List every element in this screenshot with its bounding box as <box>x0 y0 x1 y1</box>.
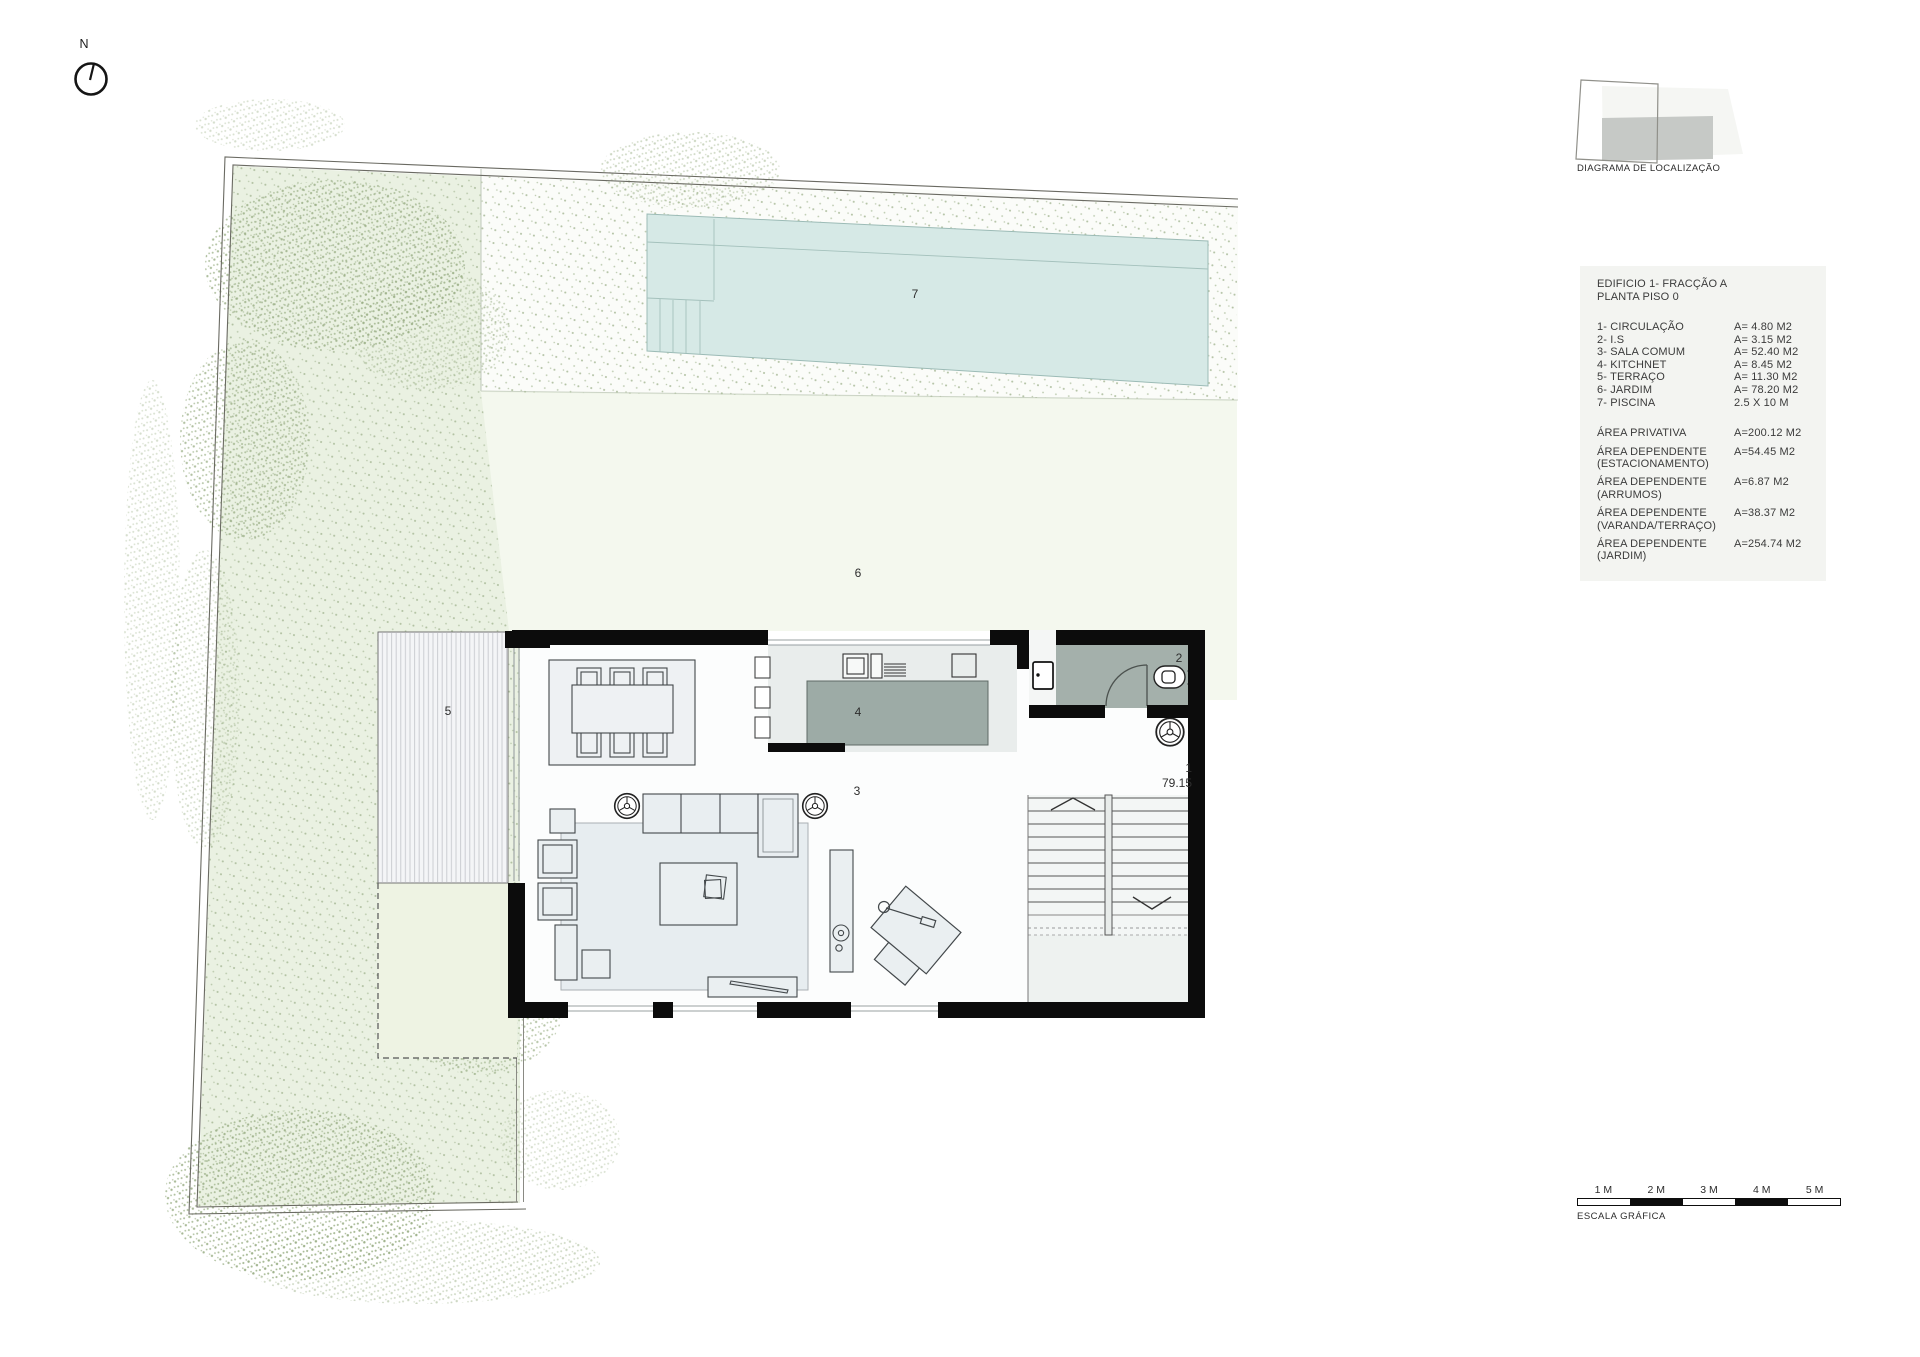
legend-area-list: ÁREA PRIVATIVAA=200.12 M2 ÁREA DEPENDENT… <box>1597 427 1814 563</box>
legend-row: 1- CIRCULAÇÃOA= 4.80 M2 <box>1597 321 1814 334</box>
ceiling-fan-icon <box>1156 718 1184 746</box>
kitchen-stools <box>755 657 770 738</box>
scale-bar-segments <box>1577 1198 1841 1206</box>
room-label-is: 2 <box>1176 651 1183 665</box>
bathroom <box>1029 645 1190 708</box>
room-label-terraco: 5 <box>445 704 452 718</box>
building <box>505 630 1205 1018</box>
legend-area-row: ÁREA DEPENDENTE(JARDIM)A=254.74 M2 <box>1597 538 1814 563</box>
sideboard <box>830 850 853 972</box>
legend-row: 2- I.SA= 3.15 M2 <box>1597 334 1814 347</box>
stair-divider <box>1105 795 1112 935</box>
room-label-piscina: 7 <box>912 287 919 301</box>
legend-room-list: 1- CIRCULAÇÃOA= 4.80 M2 2- I.SA= 3.15 M2… <box>1597 321 1814 409</box>
legend-area-row: ÁREA PRIVATIVAA=200.12 M2 <box>1597 427 1814 439</box>
speaker-icon <box>615 794 640 819</box>
coffee-table <box>660 863 737 925</box>
side-table <box>550 809 575 833</box>
legend-title-line1: EDIFICIO 1- FRACÇÃO A <box>1597 278 1814 291</box>
localization-diagram <box>1576 80 1743 163</box>
dining-table <box>572 685 673 733</box>
room-label-jardim: 6 <box>855 566 862 580</box>
scale-bar: 1 M 2 M 3 M 4 M 5 M ESCALA GRÁFICA <box>1577 1184 1841 1222</box>
scale-bar-caption: ESCALA GRÁFICA <box>1577 1211 1841 1222</box>
room-label-circulacao: 1 <box>1106 761 1192 776</box>
garden-dashed-area <box>378 883 517 1058</box>
washbasin-icon <box>1033 662 1053 689</box>
north-label: N <box>79 37 88 51</box>
level-value: 79.15 <box>1106 776 1192 791</box>
table-decor <box>704 875 727 899</box>
armchair <box>538 840 577 878</box>
stair-landing <box>1028 935 1188 1002</box>
legend-row: 5- TERRAÇOA= 11.30 M2 <box>1597 371 1814 384</box>
legend-area-row: ÁREA DEPENDENTE(VARANDA/TERRAÇO)A=38.37 … <box>1597 507 1814 532</box>
legend-row: 3- SALA COMUMA= 52.40 M2 <box>1597 346 1814 359</box>
plan-drawing <box>0 0 1920 1357</box>
floor-plan-sheet: 7 6 5 4 3 2 1 79.15 N DIAGRAMA DE LOCALI… <box>0 0 1920 1357</box>
room-label-sala: 3 <box>854 784 861 798</box>
terrace <box>378 632 508 883</box>
side-table <box>582 950 610 978</box>
room-label-kitchnet: 4 <box>855 705 862 719</box>
stairs <box>1028 795 1188 1002</box>
legend-row: 6- JARDIMA= 78.20 M2 <box>1597 384 1814 397</box>
entry-opening <box>1030 630 1056 645</box>
legend-title-line2: PLANTA PISO 0 <box>1597 291 1814 304</box>
bench <box>555 925 577 980</box>
legend-area-row: ÁREA DEPENDENTE(ARRUMOS)A=6.87 M2 <box>1597 476 1814 501</box>
north-arrow-icon <box>76 64 107 95</box>
legend-row: 4- KITCHNETA= 8.45 M2 <box>1597 359 1814 372</box>
scale-bar-labels: 1 M 2 M 3 M 4 M 5 M <box>1577 1184 1841 1198</box>
localization-diagram-label: DIAGRAMA DE LOCALIZAÇÃO <box>1577 163 1720 174</box>
circulation-level: 1 79.15 <box>1106 761 1192 791</box>
legend-area-row: ÁREA DEPENDENTE(ESTACIONAMENTO)A=54.45 M… <box>1597 446 1814 471</box>
legend-row: 7- PISCINA2.5 X 10 M <box>1597 397 1814 410</box>
speaker-icon <box>803 794 828 819</box>
legend-panel: EDIFICIO 1- FRACÇÃO A PLANTA PISO 0 1- C… <box>1580 266 1826 581</box>
dining-area <box>549 660 695 765</box>
